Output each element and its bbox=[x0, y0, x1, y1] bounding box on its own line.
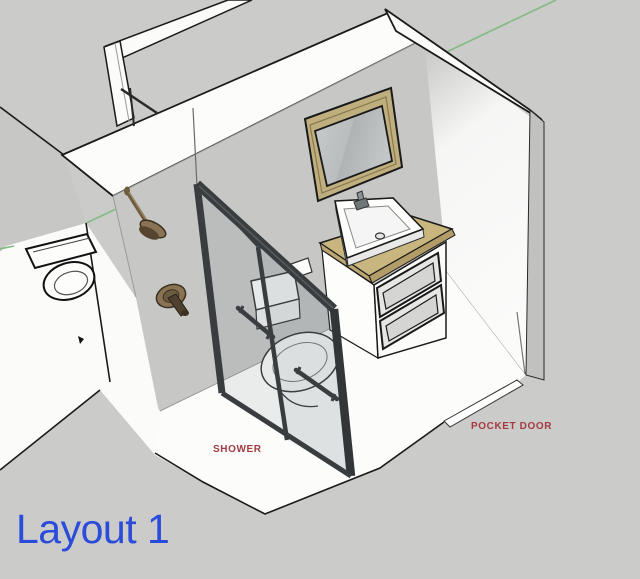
pocket-door-label: POCKET DOOR bbox=[471, 421, 552, 432]
bathroom-3d-view: SHOWER POCKET DOOR Layout 1 bbox=[0, 0, 640, 579]
layout-title: Layout 1 bbox=[16, 506, 169, 552]
shower-label: SHOWER bbox=[213, 444, 262, 455]
sink-drain bbox=[376, 233, 385, 239]
bathroom-3d-render: SHOWER POCKET DOOR Layout 1 bbox=[0, 0, 640, 579]
